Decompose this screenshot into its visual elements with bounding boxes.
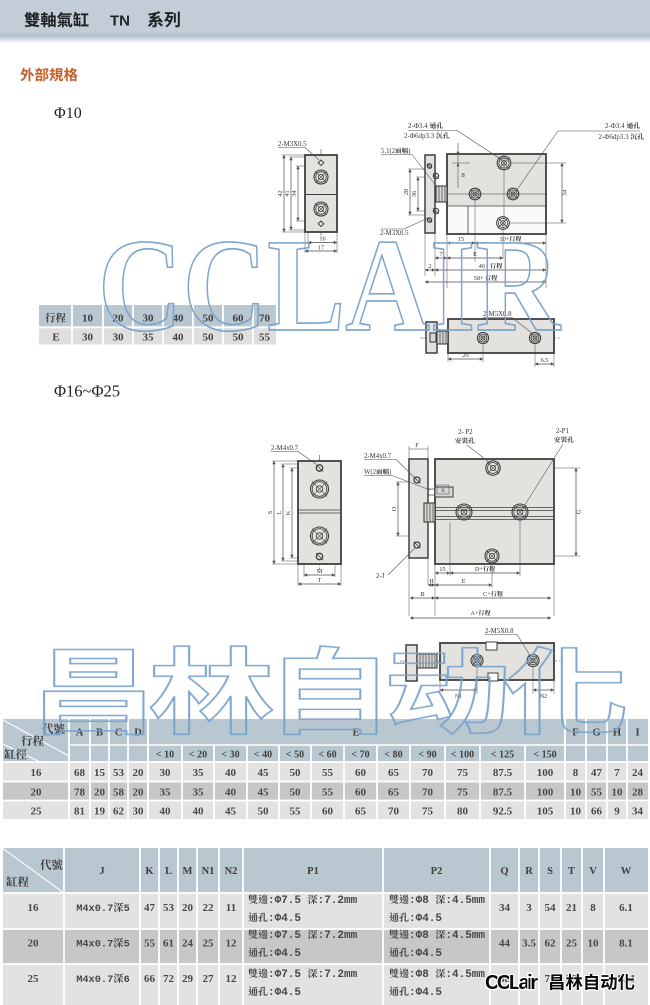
svg-text::7.2mm: :7.2mm <box>318 930 358 942</box>
svg-text:< 10: < 10 <box>156 750 174 761</box>
svg-text:68: 68 <box>74 767 86 779</box>
svg-text:50: 50 <box>290 767 302 779</box>
svg-text:2-M3X0.5: 2-M3X0.5 <box>278 141 307 148</box>
svg-text:J: J <box>99 866 104 877</box>
svg-text:50: 50 <box>290 787 302 799</box>
svg-text:15: 15 <box>439 566 445 573</box>
svg-text:34: 34 <box>291 190 298 197</box>
svg-text:47: 47 <box>591 767 603 779</box>
svg-text:R: R <box>525 866 533 877</box>
svg-text:100: 100 <box>537 767 554 779</box>
svg-text:E: E <box>52 332 59 344</box>
svg-text::Φ7.5: :Φ7.5 <box>268 895 301 907</box>
svg-text:55: 55 <box>591 787 603 799</box>
svg-text:54: 54 <box>545 902 557 914</box>
svg-text:C: C <box>115 728 123 739</box>
svg-text:11: 11 <box>226 902 236 914</box>
svg-text:2-Φ3.4: 2-Φ3.4 <box>605 122 625 130</box>
svg-text:21: 21 <box>566 902 577 914</box>
svg-text:19: 19 <box>94 806 106 818</box>
svg-text:): ) <box>389 469 391 476</box>
svg-text:66: 66 <box>144 973 156 985</box>
svg-text:G: G <box>592 728 600 739</box>
svg-text:15: 15 <box>94 767 106 779</box>
svg-text::Φ4.5: :Φ4.5 <box>409 913 442 925</box>
svg-text:A: A <box>76 728 84 739</box>
svg-text:2-Φ6dp3.3: 2-Φ6dp3.3 <box>598 133 629 141</box>
svg-text:< 30: < 30 <box>221 750 239 761</box>
svg-text:5: 5 <box>124 939 130 951</box>
svg-text:20: 20 <box>133 767 145 779</box>
svg-text:O: O <box>391 506 398 511</box>
svg-text:D: D <box>134 728 142 739</box>
svg-text:35: 35 <box>160 787 172 799</box>
svg-text:6.1: 6.1 <box>619 902 633 914</box>
svg-text::Φ4.5: :Φ4.5 <box>409 987 442 999</box>
svg-text:M: M <box>183 866 193 877</box>
svg-text:): ) <box>408 148 410 155</box>
svg-text:87.5: 87.5 <box>493 787 513 799</box>
svg-text:70: 70 <box>422 767 434 779</box>
svg-text::Φ4.5: :Φ4.5 <box>409 948 442 960</box>
svg-text:M4x0.7: M4x0.7 <box>76 939 113 951</box>
svg-text:60: 60 <box>322 806 334 818</box>
svg-text:36: 36 <box>411 191 418 197</box>
svg-text:10: 10 <box>570 787 582 799</box>
svg-text:55: 55 <box>322 767 334 779</box>
svg-text:2- P2: 2- P2 <box>458 429 473 436</box>
svg-text:81: 81 <box>74 806 85 818</box>
svg-text:25: 25 <box>203 938 215 950</box>
svg-text:< 40: < 40 <box>254 750 272 761</box>
svg-text::Φ4.5: :Φ4.5 <box>268 913 301 925</box>
svg-text:30: 30 <box>82 332 94 344</box>
svg-text:2-P1: 2-P1 <box>556 428 569 435</box>
svg-text:< 150: < 150 <box>533 750 556 761</box>
svg-text:7: 7 <box>614 767 620 779</box>
svg-text:3.5: 3.5 <box>522 938 536 950</box>
svg-text:2-J: 2-J <box>376 573 385 580</box>
svg-text:75: 75 <box>457 787 469 799</box>
svg-text:F: F <box>415 442 419 449</box>
svg-text:28: 28 <box>403 189 410 195</box>
svg-text:34: 34 <box>562 189 569 196</box>
svg-text:55: 55 <box>322 787 334 799</box>
svg-text:60: 60 <box>355 767 367 779</box>
svg-text:L: L <box>276 510 283 514</box>
svg-text:24: 24 <box>632 767 644 779</box>
svg-text:10: 10 <box>82 313 94 325</box>
svg-text:47: 47 <box>144 902 156 914</box>
svg-text:CCLAIR: CCLAIR <box>98 211 562 359</box>
svg-text:30: 30 <box>160 767 172 779</box>
svg-text:25: 25 <box>566 938 578 950</box>
svg-text:V: V <box>589 866 597 877</box>
svg-text::Φ4.5: :Φ4.5 <box>268 948 301 960</box>
svg-text:35: 35 <box>193 787 205 799</box>
svg-text:66: 66 <box>591 806 603 818</box>
svg-text:A+: A+ <box>470 610 479 617</box>
svg-text:M4x0.7: M4x0.7 <box>76 903 113 915</box>
svg-text:H: H <box>429 578 434 585</box>
svg-text::Φ8: :Φ8 <box>409 895 429 907</box>
svg-text:61: 61 <box>163 938 174 950</box>
svg-text::4.5mm: :4.5mm <box>445 969 485 981</box>
svg-text:100: 100 <box>537 787 554 799</box>
svg-text:W: W <box>621 866 632 877</box>
svg-text:8: 8 <box>462 172 465 179</box>
svg-text:60: 60 <box>355 787 367 799</box>
svg-text:9: 9 <box>614 806 620 818</box>
svg-text:92.5: 92.5 <box>493 806 513 818</box>
svg-text:25: 25 <box>28 973 40 985</box>
svg-text:< 125: < 125 <box>491 750 514 761</box>
svg-text:75: 75 <box>422 806 434 818</box>
svg-text:40: 40 <box>225 787 237 799</box>
svg-text:65: 65 <box>388 787 400 799</box>
svg-text:10: 10 <box>570 806 582 818</box>
svg-text:D+: D+ <box>475 566 484 573</box>
svg-text:< 50: < 50 <box>286 750 304 761</box>
svg-text:58: 58 <box>113 787 125 799</box>
svg-text:53: 53 <box>113 767 125 779</box>
svg-text:10: 10 <box>588 938 600 950</box>
svg-text:T: T <box>568 866 575 877</box>
svg-text:T: T <box>318 577 322 584</box>
svg-text:35: 35 <box>193 767 205 779</box>
svg-text:N2: N2 <box>540 694 547 700</box>
svg-text:45: 45 <box>258 767 270 779</box>
svg-text:M: M <box>317 568 323 575</box>
svg-text:8.1: 8.1 <box>619 938 633 950</box>
svg-text::Φ4.5: :Φ4.5 <box>268 987 301 999</box>
svg-text:Q: Q <box>500 866 508 877</box>
svg-text::7.2mm: :7.2mm <box>318 969 358 981</box>
svg-text:87.5: 87.5 <box>493 767 513 779</box>
svg-text:8: 8 <box>590 902 596 914</box>
svg-text:L: L <box>165 866 172 877</box>
svg-text:6: 6 <box>124 974 130 986</box>
svg-text::Φ7.5: :Φ7.5 <box>268 969 301 981</box>
svg-text:< 80: < 80 <box>384 750 402 761</box>
svg-text:K: K <box>285 510 292 515</box>
svg-text:< 70: < 70 <box>351 750 369 761</box>
svg-text:12: 12 <box>226 973 238 985</box>
svg-text:< 90: < 90 <box>418 750 436 761</box>
svg-text:65: 65 <box>355 806 367 818</box>
svg-text:20: 20 <box>133 787 145 799</box>
svg-text::Φ8: :Φ8 <box>409 969 429 981</box>
svg-text:< 100: < 100 <box>451 750 474 761</box>
svg-text:20: 20 <box>28 938 40 950</box>
svg-text:105: 105 <box>537 806 554 818</box>
svg-text::4.5mm: :4.5mm <box>445 895 485 907</box>
svg-text:M4x0.7: M4x0.7 <box>76 974 113 986</box>
svg-text:G: G <box>576 509 583 514</box>
svg-text:34: 34 <box>632 806 644 818</box>
svg-text:75: 75 <box>457 767 469 779</box>
svg-text:2-M4x0.7: 2-M4x0.7 <box>271 445 299 452</box>
svg-text:24: 24 <box>182 938 194 950</box>
svg-text:78: 78 <box>74 787 86 799</box>
svg-text:28: 28 <box>632 787 644 799</box>
svg-text:72: 72 <box>163 973 175 985</box>
svg-text:K: K <box>145 866 154 877</box>
svg-text:40: 40 <box>193 806 205 818</box>
svg-text:80: 80 <box>457 806 469 818</box>
svg-text:Φ10: Φ10 <box>54 105 82 122</box>
svg-text:10: 10 <box>612 787 624 799</box>
svg-text:2-Φ6dp3.3: 2-Φ6dp3.3 <box>404 132 435 140</box>
svg-text:53: 53 <box>163 902 175 914</box>
svg-text::4.5mm: :4.5mm <box>445 930 485 942</box>
svg-text:62: 62 <box>113 806 125 818</box>
svg-text:40: 40 <box>225 767 237 779</box>
svg-text:16: 16 <box>31 767 43 779</box>
svg-text:2-M4x0.7: 2-M4x0.7 <box>364 453 392 460</box>
svg-text:12: 12 <box>226 938 238 950</box>
svg-text:< 60: < 60 <box>318 750 336 761</box>
svg-text:3: 3 <box>526 902 532 914</box>
svg-text:29: 29 <box>182 973 194 985</box>
svg-text:N2: N2 <box>225 866 238 877</box>
svg-text:S: S <box>547 866 553 877</box>
svg-text:5: 5 <box>124 903 130 915</box>
svg-text:70: 70 <box>388 806 400 818</box>
svg-text:8: 8 <box>573 767 579 779</box>
svg-text::7.2mm: :7.2mm <box>318 895 358 907</box>
svg-text:B: B <box>420 591 424 598</box>
svg-text:CCLair: CCLair <box>485 972 538 994</box>
svg-text::Φ7.5: :Φ7.5 <box>268 930 301 942</box>
svg-text:W(2: W(2 <box>364 469 377 476</box>
svg-text:34: 34 <box>499 902 511 914</box>
svg-text::Φ8: :Φ8 <box>409 930 429 942</box>
svg-text:50: 50 <box>258 806 270 818</box>
svg-text:45: 45 <box>258 787 270 799</box>
svg-text:41: 41 <box>284 190 291 196</box>
svg-text:2-M5X0.8: 2-M5X0.8 <box>485 628 514 635</box>
svg-text:45: 45 <box>225 806 237 818</box>
svg-text:55: 55 <box>290 806 302 818</box>
svg-text:20: 20 <box>94 787 106 799</box>
svg-text:TN: TN <box>110 13 130 30</box>
svg-text:Φ16~Φ25: Φ16~Φ25 <box>54 382 120 401</box>
svg-text:P1: P1 <box>307 866 319 877</box>
svg-text:16: 16 <box>28 902 40 914</box>
svg-text:N1: N1 <box>202 866 215 877</box>
svg-text:5.1(2: 5.1(2 <box>381 148 396 155</box>
svg-text:C+: C+ <box>483 591 491 598</box>
svg-text:40: 40 <box>160 806 172 818</box>
svg-text:20: 20 <box>182 902 194 914</box>
svg-text:B: B <box>96 728 103 739</box>
svg-text:< 20: < 20 <box>189 750 207 761</box>
svg-text:27: 27 <box>203 973 215 985</box>
svg-text:42: 42 <box>277 190 284 196</box>
svg-text:22: 22 <box>203 902 215 914</box>
svg-text:70: 70 <box>422 787 434 799</box>
svg-text:F: F <box>572 728 578 739</box>
svg-text:2-Φ3.4: 2-Φ3.4 <box>408 122 428 130</box>
svg-text:E: E <box>462 578 466 585</box>
svg-text:62: 62 <box>545 938 557 950</box>
svg-text:44: 44 <box>499 938 511 950</box>
svg-text:25: 25 <box>31 806 43 818</box>
svg-text:P2: P2 <box>431 866 443 877</box>
svg-text:I: I <box>635 728 639 739</box>
svg-text:55: 55 <box>144 938 156 950</box>
svg-text:X: X <box>441 488 445 494</box>
svg-text:S: S <box>267 510 274 514</box>
svg-text:65: 65 <box>388 767 400 779</box>
svg-text:20: 20 <box>31 787 43 799</box>
svg-text:30: 30 <box>133 806 145 818</box>
